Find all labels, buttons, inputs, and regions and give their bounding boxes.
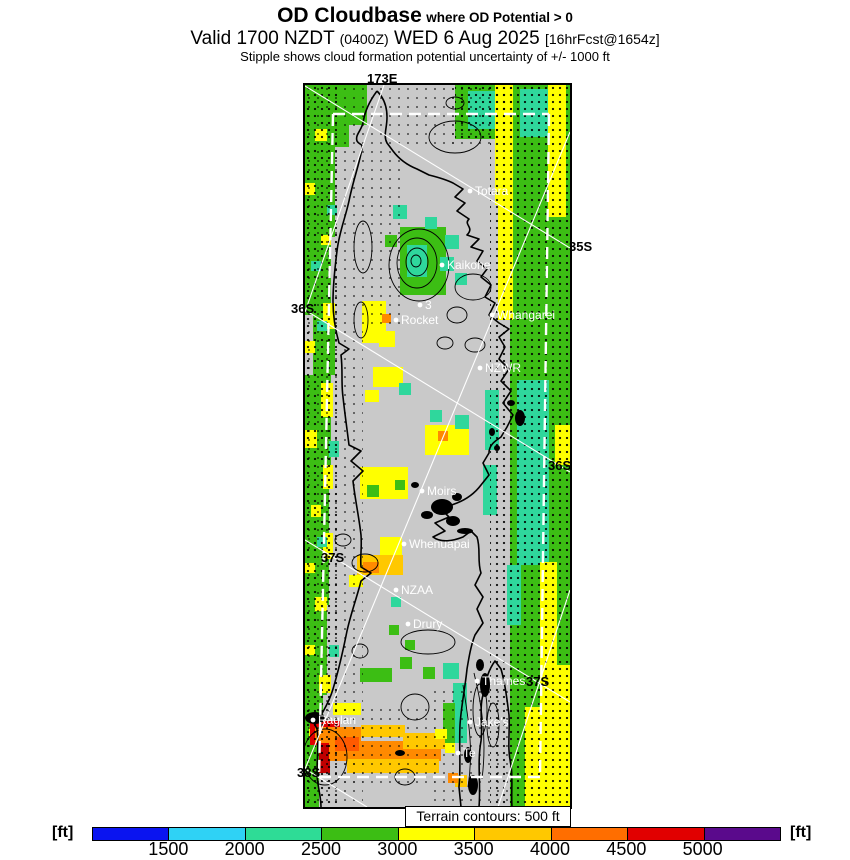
- edge-label-38s: 38S: [297, 765, 320, 780]
- map-patch: [380, 537, 402, 557]
- map-patch: [367, 485, 379, 497]
- colorbar-tick-label: 2500: [301, 839, 341, 860]
- city-dot: [468, 189, 473, 194]
- city-dot: [478, 366, 483, 371]
- island-blob: [395, 750, 405, 756]
- stipple-note: Stipple shows cloud formation potential …: [0, 50, 850, 65]
- colorbar-tick-label: 4500: [606, 839, 646, 860]
- island-blob: [489, 428, 495, 436]
- map-patch: [430, 410, 442, 422]
- city-label: Totara: [475, 184, 509, 198]
- city-label: Raglan: [318, 713, 356, 727]
- colorbar-tick-label: 1500: [148, 839, 188, 860]
- map-patch: [455, 415, 469, 429]
- city-label: Drury: [413, 617, 442, 631]
- colorbar-tick-label: 4000: [530, 839, 570, 860]
- island-blob: [421, 511, 433, 519]
- city-label: Moirs: [427, 484, 456, 498]
- edge-label-35s: 35S: [569, 239, 592, 254]
- title-qualifier: where OD Potential > 0: [426, 10, 573, 25]
- colorbar-ticks: 15002000250030003500400045005000: [92, 839, 779, 859]
- edge-label-36s: 36S: [548, 458, 571, 473]
- city-dot: [394, 588, 399, 593]
- colorbar-tick-label: 3000: [377, 839, 417, 860]
- city-label: Rocket: [401, 313, 439, 327]
- colorbar-tick-label: 5000: [683, 839, 723, 860]
- island-blob: [515, 410, 525, 426]
- city-dot: [418, 303, 423, 308]
- map-patch: [399, 383, 411, 395]
- map-patch: [373, 367, 403, 387]
- city-label: Jake's: [475, 715, 509, 729]
- title-line-2: Valid 1700 NZDT (0400Z) WED 6 Aug 2025 […: [0, 28, 850, 50]
- city-label: 3: [425, 298, 432, 312]
- city-dot: [420, 489, 425, 494]
- colorbar-tick-label: 2000: [225, 839, 265, 860]
- island-blob: [431, 499, 453, 515]
- map-patch: [395, 480, 405, 490]
- contour-ring: [437, 337, 453, 349]
- map-panel: TotaraKaikohe3RocketWhangareiNZWRMoirsWh…: [303, 83, 572, 809]
- island-blob: [446, 516, 460, 526]
- city-dot: [394, 318, 399, 323]
- edge-label-36s: 36S: [291, 301, 314, 316]
- colorbar-tick-label: 3500: [454, 839, 494, 860]
- city-label: Te: [463, 746, 476, 760]
- city-dot: [490, 313, 495, 318]
- map-patch: [391, 597, 401, 607]
- unit-label-right: [ft]: [790, 824, 811, 842]
- island-blob: [507, 400, 515, 406]
- map-patch: [360, 668, 392, 682]
- city-label: Thames: [482, 674, 525, 688]
- contour-ring: [447, 307, 467, 323]
- island-blob: [476, 659, 484, 671]
- city-label: NZWR: [485, 361, 521, 375]
- island-blob: [457, 528, 473, 534]
- contour-ring: [465, 338, 485, 352]
- edge-label-173e: 173E: [367, 71, 397, 86]
- city-dot: [402, 542, 407, 547]
- city-dot: [468, 720, 473, 725]
- city-label: Whangarei: [497, 308, 555, 322]
- title-line-1: OD Cloudbase where OD Potential > 0: [0, 4, 850, 28]
- weather-map-canvas: TotaraKaikohe3RocketWhangareiNZWRMoirsWh…: [305, 85, 570, 807]
- map-patch: [379, 331, 395, 347]
- map-patch: [445, 235, 459, 249]
- map-patch: [423, 667, 435, 679]
- map-patch: [400, 657, 412, 669]
- city-dot: [456, 751, 461, 756]
- city-dot: [475, 679, 480, 684]
- city-label: Whenuapai: [409, 537, 470, 551]
- map-patch: [443, 663, 459, 679]
- city-dot: [440, 263, 445, 268]
- city-dot: [311, 718, 316, 723]
- map-patch: [389, 625, 399, 635]
- title-block: OD Cloudbase where OD Potential > 0 Vali…: [0, 4, 850, 65]
- map-patch: [425, 217, 437, 229]
- terrain-contours-note: Terrain contours: 500 ft: [405, 806, 571, 827]
- title-main: OD Cloudbase: [277, 4, 422, 27]
- city-label: NZAA: [401, 583, 433, 597]
- unit-label-left: [ft]: [52, 824, 73, 842]
- city-dot: [406, 622, 411, 627]
- island-blob: [494, 445, 500, 451]
- island-blob: [411, 482, 419, 488]
- city-label: Kaikohe: [447, 258, 491, 272]
- edge-label-37s: 37S: [526, 674, 549, 689]
- map-patch: [405, 640, 415, 650]
- stipple-region: [455, 85, 513, 139]
- map-patch: [365, 390, 379, 402]
- edge-label-37s: 37S: [321, 550, 344, 565]
